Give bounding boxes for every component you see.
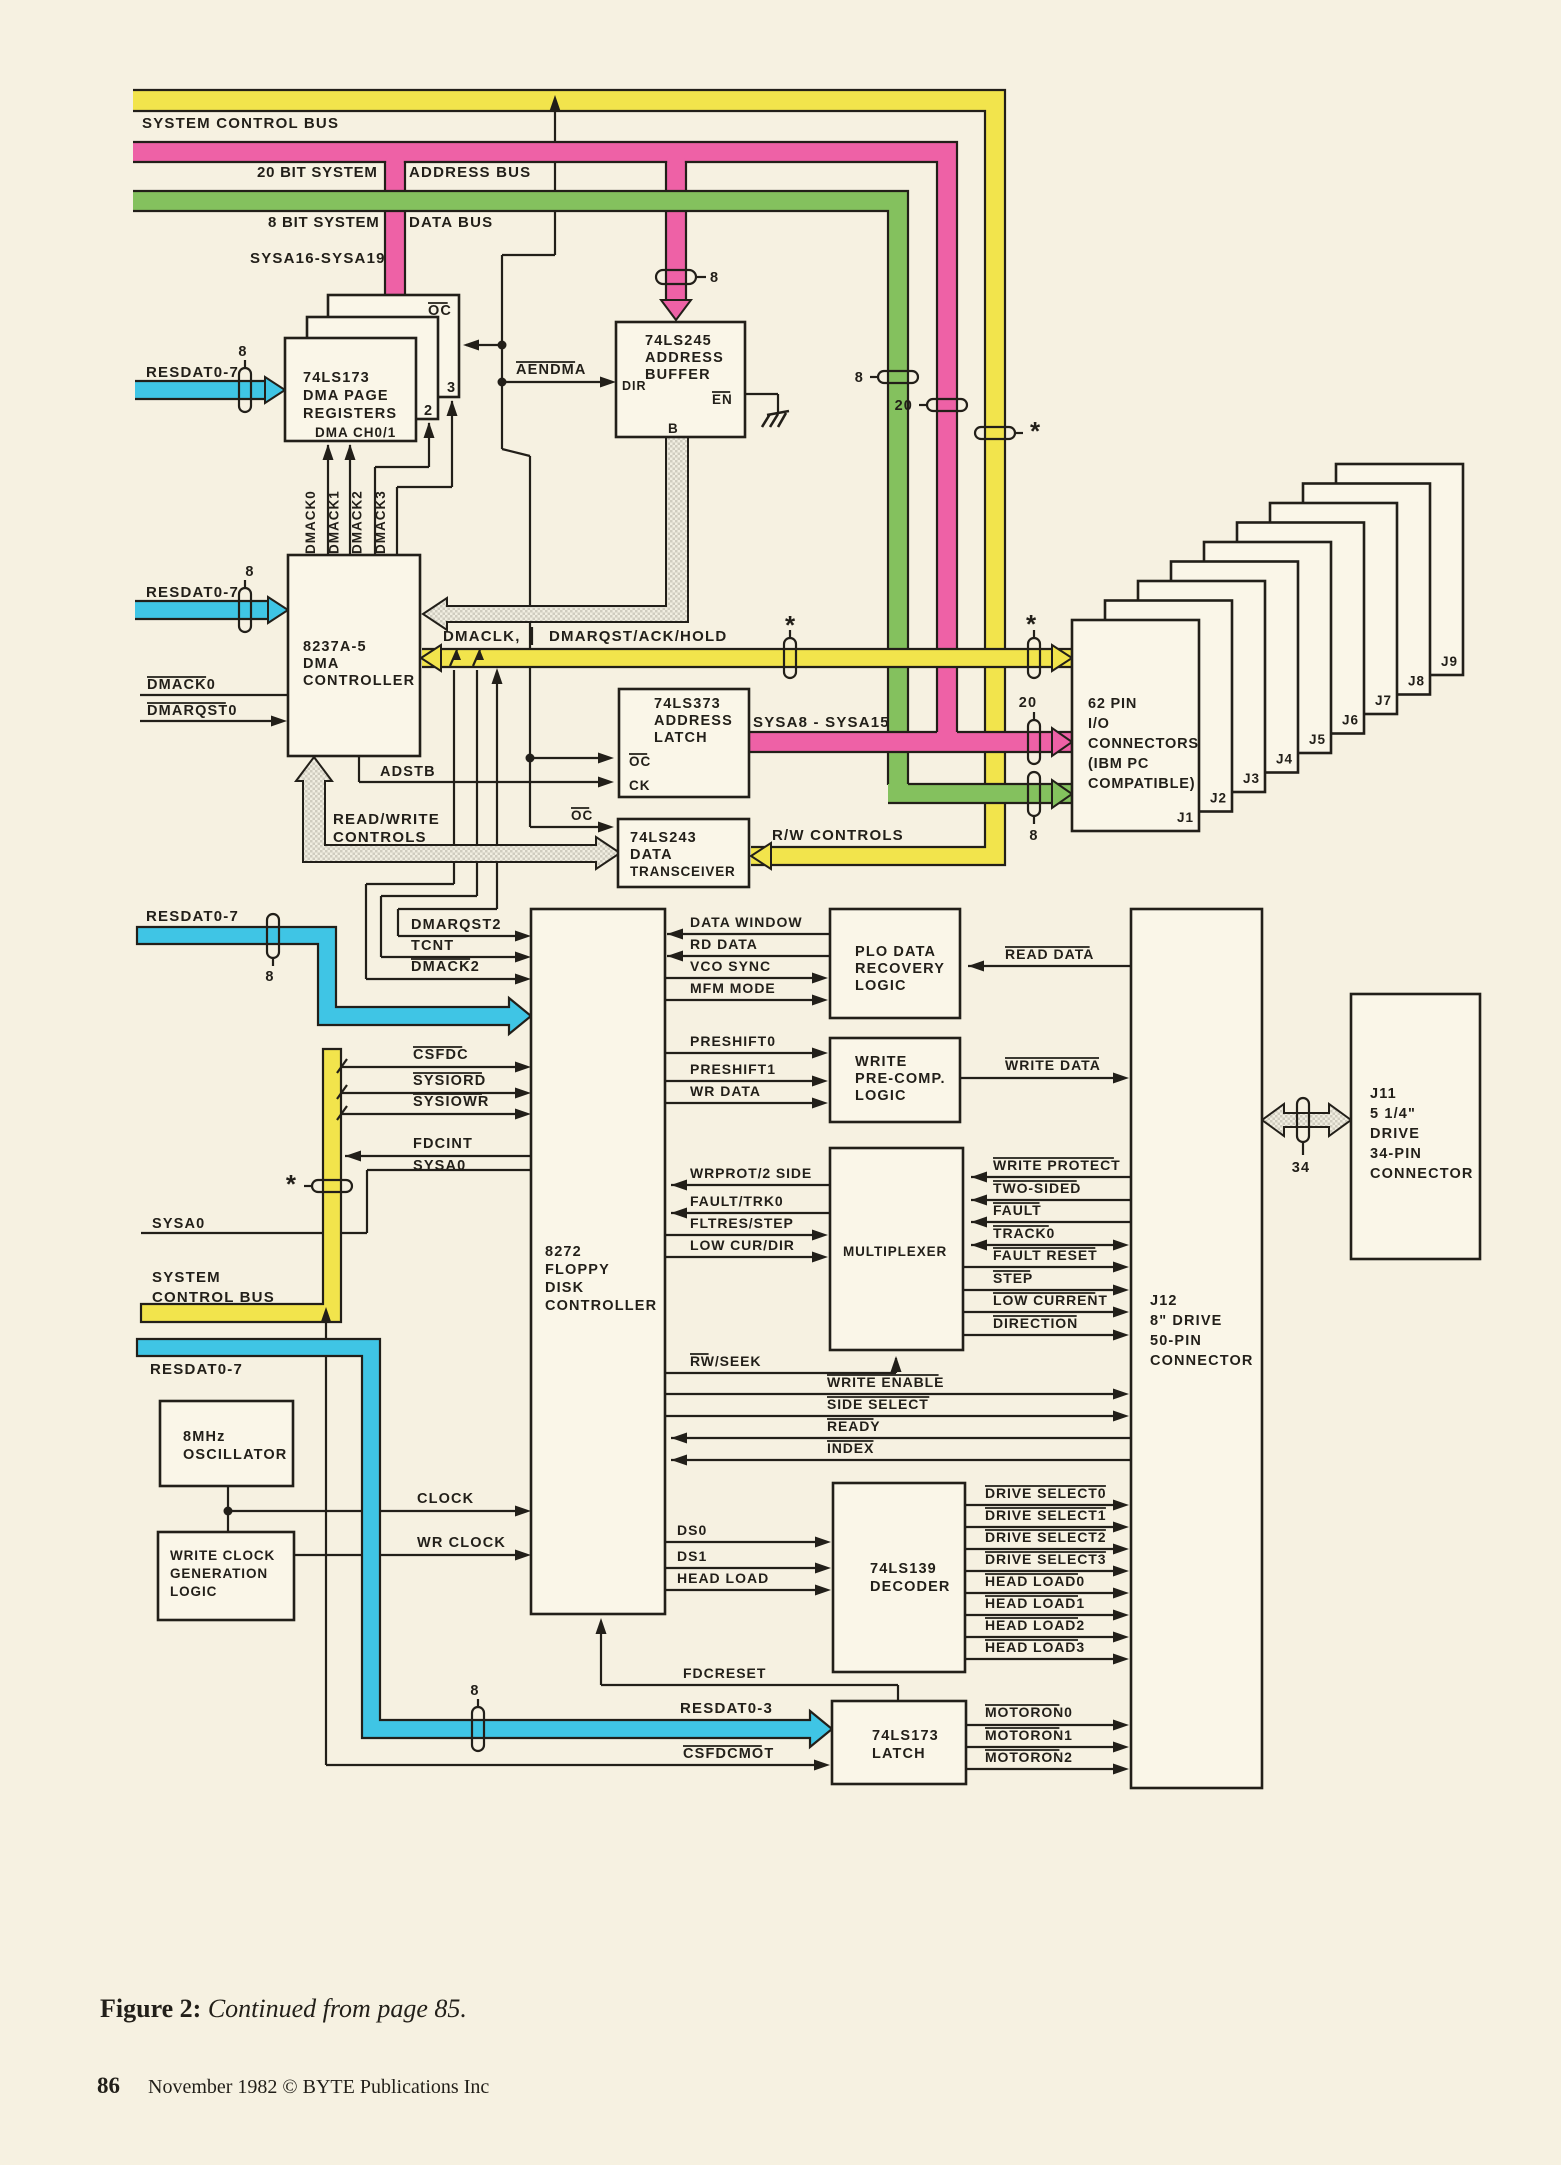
svg-text:November 1982 © BYTE Publicati: November 1982 © BYTE Publications Inc [148,2076,489,2098]
svg-text:DMACK2: DMACK2 [411,959,480,975]
svg-text:SYSA16-SYSA19: SYSA16-SYSA19 [250,250,386,267]
svg-text:RD DATA: RD DATA [690,936,758,952]
svg-text:ADDRESS: ADDRESS [645,350,724,366]
svg-text:5 1/4": 5 1/4" [1370,1106,1416,1122]
svg-text:LATCH: LATCH [654,730,708,746]
svg-text:B: B [668,421,679,436]
svg-text:MOTORON0: MOTORON0 [985,1704,1073,1720]
svg-text:J4: J4 [1276,752,1293,767]
svg-text:FDCRESET: FDCRESET [683,1665,766,1681]
svg-text:TWO-SIDED: TWO-SIDED [993,1180,1081,1196]
svg-text:ADSTB: ADSTB [380,764,436,780]
svg-text:8237A-5: 8237A-5 [303,639,367,655]
svg-text:*: * [286,1169,297,1199]
svg-text:HEAD LOAD: HEAD LOAD [677,1570,769,1586]
svg-text:LOGIC: LOGIC [855,978,907,994]
svg-text:DMACK2: DMACK2 [350,490,365,554]
svg-text:74LS373: 74LS373 [654,696,721,712]
svg-text:DMARQST0: DMARQST0 [147,703,238,719]
svg-text:20 BIT SYSTEM: 20 BIT SYSTEM [257,164,378,181]
svg-text:LATCH: LATCH [872,1746,926,1762]
svg-text:DIRECTION: DIRECTION [993,1315,1078,1331]
svg-text:ADDRESS BUS: ADDRESS BUS [409,164,531,181]
svg-text:WR CLOCK: WR CLOCK [417,1535,506,1551]
svg-text:TRACK0: TRACK0 [993,1225,1055,1241]
svg-text:DATA BUS: DATA BUS [409,214,493,231]
svg-text:HEAD LOAD2: HEAD LOAD2 [985,1617,1085,1633]
svg-text:COMPATIBLE): COMPATIBLE) [1088,776,1195,792]
svg-text:DMACK0: DMACK0 [303,490,318,554]
svg-text:CONNECTOR: CONNECTOR [1370,1166,1474,1182]
svg-text:SYSTEM: SYSTEM [152,1269,221,1286]
svg-text:TRANSCEIVER: TRANSCEIVER [630,864,736,879]
svg-text:READ/WRITE: READ/WRITE [333,811,440,828]
svg-text:INDEX: INDEX [827,1440,874,1456]
svg-text:20: 20 [895,398,913,414]
svg-text:34: 34 [1292,1160,1310,1176]
svg-text:PRE-COMP.: PRE-COMP. [855,1071,946,1087]
svg-text:8: 8 [1029,828,1038,844]
svg-text:CONNECTOR: CONNECTOR [1150,1353,1254,1369]
svg-text:DMACK3: DMACK3 [373,490,388,554]
svg-text:DISK: DISK [545,1280,584,1296]
svg-text:74LS139: 74LS139 [870,1561,937,1577]
svg-text:50-PIN: 50-PIN [1150,1333,1202,1349]
svg-text:MOTORON1: MOTORON1 [985,1727,1073,1743]
svg-text:LOGIC: LOGIC [170,1584,217,1599]
svg-text:I/O: I/O [1088,716,1110,732]
svg-text:8: 8 [855,370,864,386]
svg-text:DIR: DIR [622,379,647,393]
svg-text:CONNECTORS: CONNECTORS [1088,736,1199,752]
svg-text:J11: J11 [1370,1086,1397,1102]
svg-text:CSFDCMOT: CSFDCMOT [683,1746,774,1762]
svg-text:FAULT: FAULT [993,1202,1042,1218]
svg-text:READY: READY [827,1418,881,1434]
svg-text:CONTROLLER: CONTROLLER [545,1298,657,1314]
svg-text:CK: CK [629,778,651,793]
svg-text:MOTORON2: MOTORON2 [985,1749,1073,1765]
svg-text:3: 3 [447,380,456,396]
svg-text:WRITE PROTECT: WRITE PROTECT [993,1157,1121,1173]
svg-text:RESDAT0-7: RESDAT0-7 [146,364,239,381]
svg-text:WRITE ENABLE: WRITE ENABLE [827,1374,944,1390]
svg-text:DMACLK,: DMACLK, [443,628,521,645]
svg-text:8: 8 [265,969,274,985]
svg-text:OC: OC [571,808,593,823]
svg-text:TCNT: TCNT [411,938,454,954]
svg-text:DMA CH0/1: DMA CH0/1 [315,425,396,440]
svg-text:LOGIC: LOGIC [855,1088,907,1104]
svg-text:J6: J6 [1342,713,1359,728]
svg-text:J7: J7 [1375,693,1392,708]
svg-text:WRITE CLOCK: WRITE CLOCK [170,1548,275,1563]
svg-text:*: * [1030,416,1041,446]
svg-text:CONTROLLER: CONTROLLER [303,673,415,689]
svg-text:DMACK0: DMACK0 [147,677,216,693]
svg-text:ADDRESS: ADDRESS [654,713,733,729]
svg-text:74LS245: 74LS245 [645,333,712,349]
svg-text:74LS243: 74LS243 [630,830,697,846]
svg-text:CONTROL BUS: CONTROL BUS [152,1289,275,1306]
svg-text:34-PIN: 34-PIN [1370,1146,1422,1162]
svg-text:SYSA0: SYSA0 [152,1216,205,1232]
svg-text:DRIVE SELECT3: DRIVE SELECT3 [985,1551,1106,1567]
svg-text:J2: J2 [1210,791,1227,806]
svg-text:AENDMA: AENDMA [516,362,587,378]
svg-text:LOW CUR/DIR: LOW CUR/DIR [690,1237,795,1253]
svg-text:DS1: DS1 [677,1548,707,1564]
svg-text:DRIVE SELECT2: DRIVE SELECT2 [985,1529,1106,1545]
svg-text:VCO SYNC: VCO SYNC [690,958,771,974]
svg-text:STEP: STEP [993,1270,1033,1286]
svg-text:RESDAT0-7: RESDAT0-7 [146,584,239,601]
svg-text:MFM MODE: MFM MODE [690,980,776,996]
svg-text:PRESHIFT1: PRESHIFT1 [690,1061,776,1077]
svg-text:J12: J12 [1150,1293,1178,1309]
svg-text:RESDAT0-7: RESDAT0-7 [146,908,239,925]
svg-text:EN: EN [712,392,733,407]
svg-text:FLOPPY: FLOPPY [545,1262,610,1278]
svg-text:8: 8 [470,1683,479,1699]
svg-text:RESDAT0-7: RESDAT0-7 [150,1361,243,1378]
svg-text:DMARQST2: DMARQST2 [411,917,502,933]
svg-text:SYSTEM CONTROL BUS: SYSTEM CONTROL BUS [142,115,339,132]
svg-text:DRIVE SELECT1: DRIVE SELECT1 [985,1507,1106,1523]
svg-text:PRESHIFT0: PRESHIFT0 [690,1033,776,1049]
svg-text:*: * [1026,609,1037,639]
svg-text:GENERATION: GENERATION [170,1566,268,1581]
svg-text:SYSA8 - SYSA15: SYSA8 - SYSA15 [753,714,890,731]
svg-text:20: 20 [1019,695,1037,711]
svg-text:WRITE DATA: WRITE DATA [1005,1057,1101,1073]
svg-text:FAULT RESET: FAULT RESET [993,1247,1098,1263]
svg-text:8272: 8272 [545,1244,582,1260]
svg-text:62 PIN: 62 PIN [1088,696,1137,712]
svg-text:DMA: DMA [303,656,339,672]
svg-text:DRIVE SELECT0: DRIVE SELECT0 [985,1485,1106,1501]
svg-text:READ DATA: READ DATA [1005,946,1094,962]
svg-text:86: 86 [97,2073,120,2098]
svg-text:DATA: DATA [630,847,673,863]
svg-text:OC: OC [629,754,651,769]
svg-text:8: 8 [245,564,254,580]
svg-text:2: 2 [424,403,433,419]
svg-text:(IBM PC: (IBM PC [1088,756,1149,772]
svg-text:HEAD LOAD0: HEAD LOAD0 [985,1573,1085,1589]
svg-text:*: * [785,610,796,640]
svg-text:J3: J3 [1243,771,1260,786]
svg-text:PLO DATA: PLO DATA [855,944,936,960]
svg-text:FAULT/TRK0: FAULT/TRK0 [690,1193,784,1209]
svg-text:8: 8 [238,344,247,360]
svg-text:MULTIPLEXER: MULTIPLEXER [843,1244,947,1259]
svg-text:LOW CURRENT: LOW CURRENT [993,1292,1108,1308]
svg-text:HEAD LOAD3: HEAD LOAD3 [985,1639,1085,1655]
svg-text:J9: J9 [1441,654,1458,669]
svg-text:DRIVE: DRIVE [1370,1126,1420,1142]
svg-text:FLTRES/STEP: FLTRES/STEP [690,1215,794,1231]
svg-text:DATA WINDOW: DATA WINDOW [690,914,803,930]
svg-text:8: 8 [710,270,719,286]
svg-text:SYSA0: SYSA0 [413,1158,466,1174]
svg-text:R/W CONTROLS: R/W CONTROLS [772,827,904,844]
svg-text:SYSIOWR: SYSIOWR [413,1094,490,1110]
svg-text:CONTROLS: CONTROLS [333,829,427,846]
svg-text:SYSIORD: SYSIORD [413,1073,486,1089]
svg-text:8MHz: 8MHz [183,1429,225,1445]
svg-text:DS0: DS0 [677,1522,707,1538]
svg-text:74LS173: 74LS173 [303,370,370,386]
svg-text:DMACK1: DMACK1 [326,490,341,554]
svg-text:HEAD LOAD1: HEAD LOAD1 [985,1595,1085,1611]
svg-text:REGISTERS: REGISTERS [303,406,397,422]
svg-text:J8: J8 [1408,674,1425,689]
svg-text:8 BIT SYSTEM: 8 BIT SYSTEM [268,214,380,231]
svg-text:FDCINT: FDCINT [413,1136,473,1152]
svg-text:J5: J5 [1309,732,1326,747]
svg-text:CLOCK: CLOCK [417,1491,474,1507]
svg-text:J1: J1 [1177,810,1194,825]
svg-text:WRPROT/2 SIDE: WRPROT/2 SIDE [690,1165,812,1181]
svg-text:CSFDC: CSFDC [413,1047,469,1063]
svg-text:BUFFER: BUFFER [645,367,711,383]
svg-text:WR DATA: WR DATA [690,1083,761,1099]
svg-text:DECODER: DECODER [870,1579,951,1595]
svg-text:Figure 2: Continued from page: Figure 2: Continued from page 85. [100,1994,467,2023]
svg-text:74LS173: 74LS173 [872,1728,939,1744]
svg-text:8" DRIVE: 8" DRIVE [1150,1313,1222,1329]
svg-text:WRITE: WRITE [855,1054,907,1070]
svg-text:OSCILLATOR: OSCILLATOR [183,1447,287,1463]
svg-text:RECOVERY: RECOVERY [855,961,945,977]
svg-text:DMARQST/ACK/HOLD: DMARQST/ACK/HOLD [549,628,727,645]
svg-text:RESDAT0-3: RESDAT0-3 [680,1700,773,1717]
svg-text:SIDE SELECT: SIDE SELECT [827,1396,929,1412]
svg-text:RW/SEEK: RW/SEEK [690,1353,761,1369]
svg-text:DMA PAGE: DMA PAGE [303,388,389,404]
